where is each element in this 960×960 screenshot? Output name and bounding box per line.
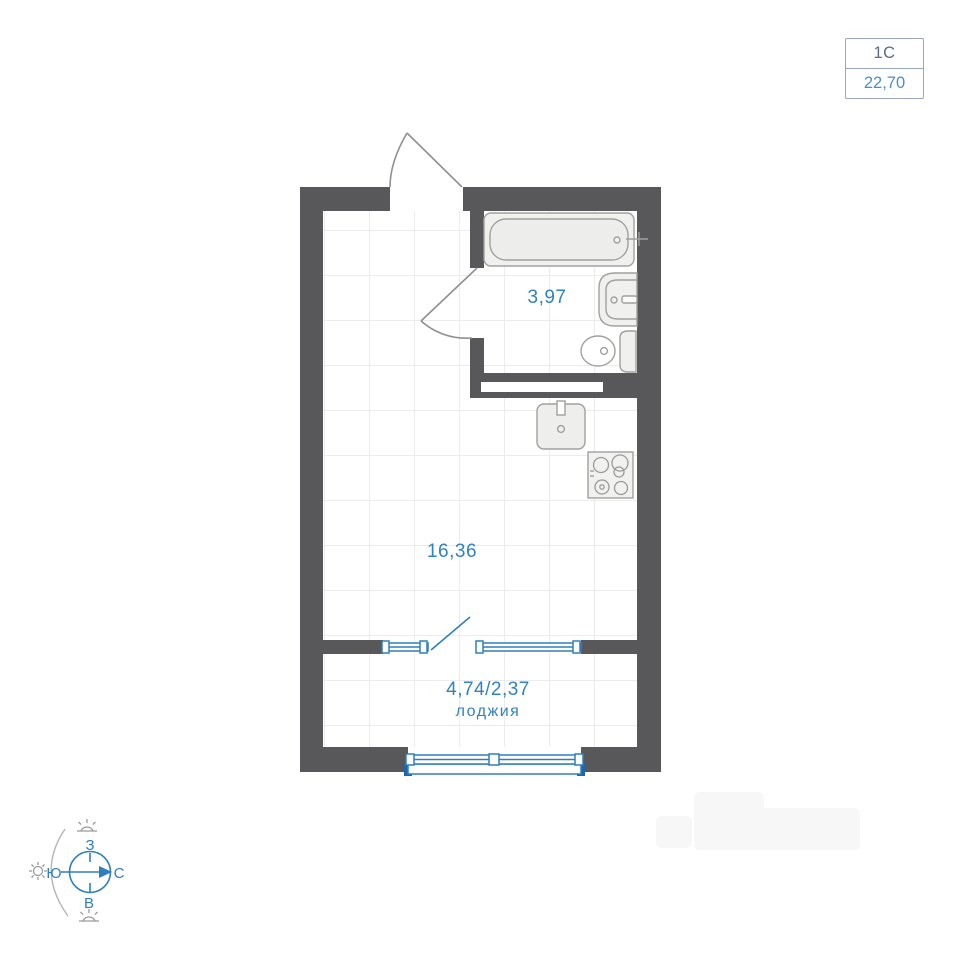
loggia-divider-wall-left	[323, 640, 383, 654]
compass-rose: З Ю С В	[29, 819, 125, 921]
entrance-door-icon	[390, 133, 462, 187]
compass-circle	[70, 852, 111, 893]
compass-arrow-head	[99, 866, 112, 878]
floor-grid	[323, 211, 637, 747]
compass-north-label: С	[114, 865, 125, 882]
compass-west-label: З	[85, 837, 94, 854]
bathroom-wall-lower	[470, 338, 484, 374]
compass-south-label: Ю	[46, 865, 61, 882]
wall-right	[637, 187, 661, 772]
sunrise-icon	[77, 819, 97, 831]
floorplan-page: З Ю С В 3,97 16,36 4,74/2,37 лоджия 1С 2…	[0, 0, 960, 960]
unit-badge[interactable]: 1С 22,70	[845, 38, 924, 99]
wall-bottom-left	[300, 747, 408, 772]
loggia-divider-wall-right	[581, 640, 637, 654]
sun-icon	[29, 862, 47, 880]
bathroom-area-label: 3,97	[507, 287, 587, 309]
living-room-area-label: 16,36	[402, 541, 502, 563]
compass-east-label: В	[84, 895, 94, 912]
loggia-name-label: лоджия	[408, 703, 568, 721]
bathroom-wall-upper	[470, 211, 484, 268]
sunset-icon	[79, 909, 99, 921]
unit-type-label: 1С	[846, 39, 923, 69]
loggia-area-label: 4,74/2,37	[408, 679, 568, 701]
sun-path-arc	[51, 829, 68, 916]
loggia-outer-window-icon	[404, 754, 585, 776]
wall-niche-slot	[481, 382, 603, 392]
wall-top-right	[463, 187, 661, 211]
unit-area-label: 22,70	[846, 69, 923, 98]
wall-left	[300, 187, 323, 772]
wall-bottom-right	[581, 747, 661, 772]
bathroom-wall-bottom	[470, 373, 637, 398]
